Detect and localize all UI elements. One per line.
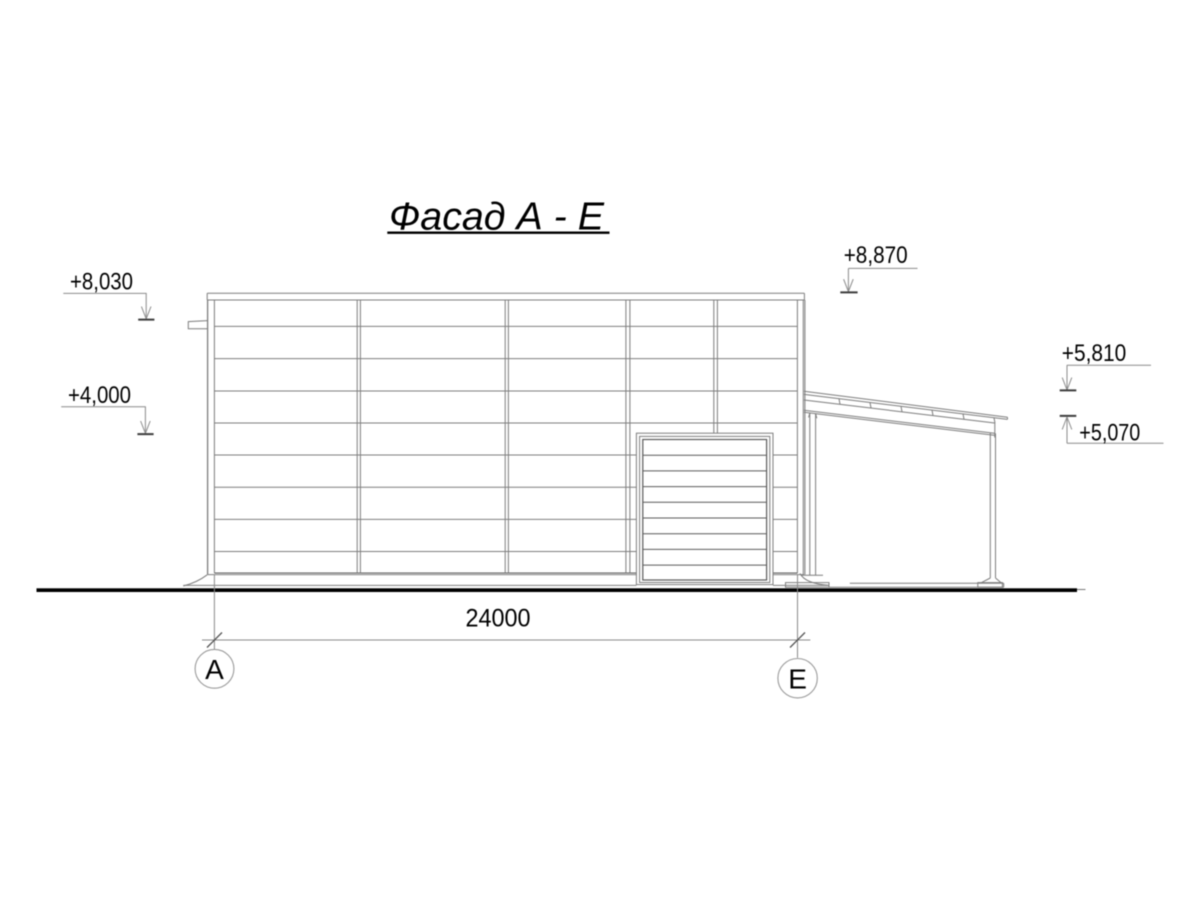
svg-text:+8,870: +8,870	[844, 242, 908, 269]
svg-text:+5,810: +5,810	[1062, 340, 1127, 367]
svg-text:+4,000: +4,000	[68, 382, 131, 409]
svg-text:+8,030: +8,030	[70, 269, 133, 296]
svg-text:А: А	[205, 654, 224, 685]
svg-text:Е: Е	[788, 664, 807, 695]
svg-text:24000: 24000	[466, 605, 531, 633]
svg-text:+5,070: +5,070	[1079, 419, 1140, 446]
